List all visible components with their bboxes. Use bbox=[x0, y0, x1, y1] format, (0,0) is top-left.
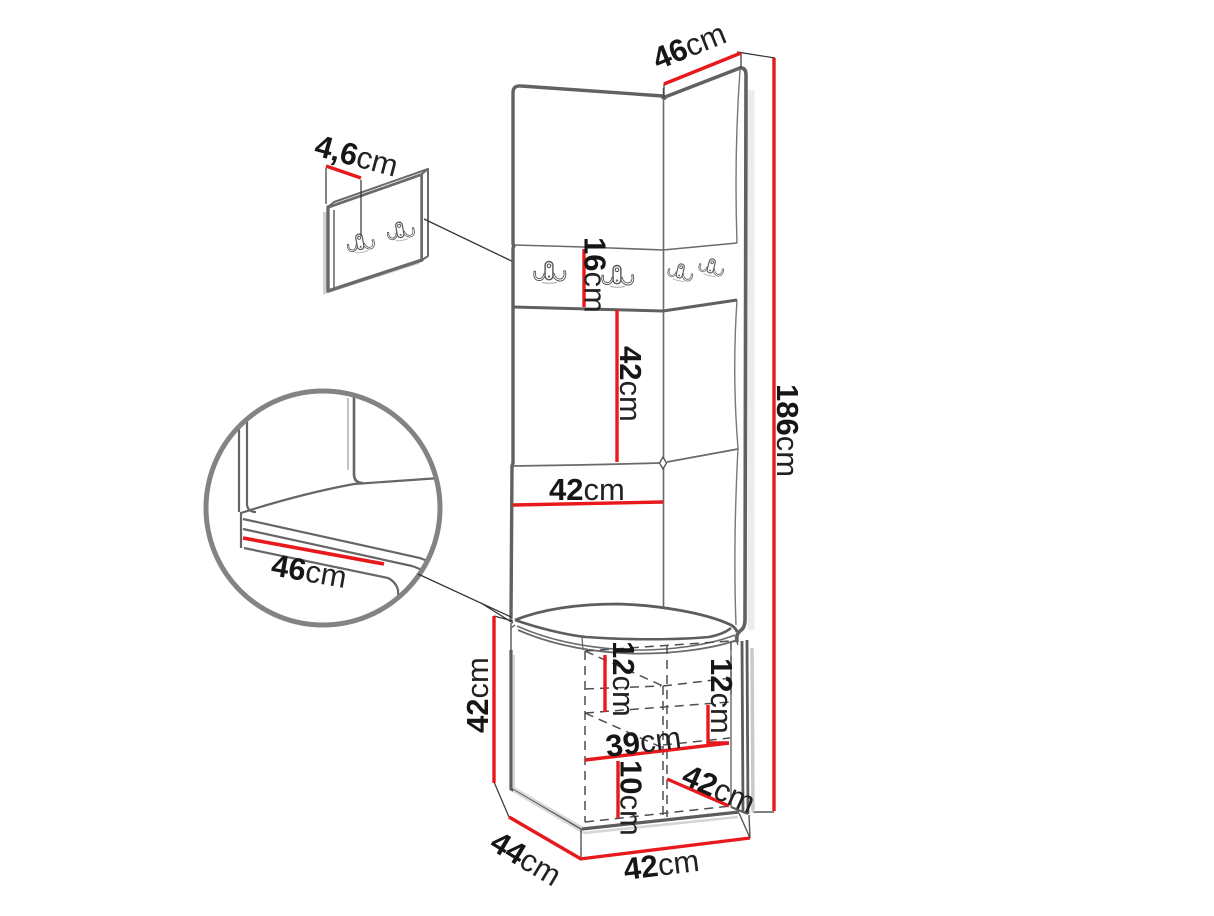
svg-text:16cm: 16cm bbox=[578, 237, 613, 313]
svg-text:10cm: 10cm bbox=[614, 760, 649, 836]
svg-text:42cm: 42cm bbox=[460, 657, 495, 733]
svg-text:42cm: 42cm bbox=[549, 472, 625, 507]
svg-text:12cm: 12cm bbox=[606, 641, 641, 717]
svg-text:186cm: 186cm bbox=[770, 384, 805, 477]
svg-text:42cm: 42cm bbox=[613, 346, 648, 422]
svg-text:12cm: 12cm bbox=[704, 658, 739, 734]
